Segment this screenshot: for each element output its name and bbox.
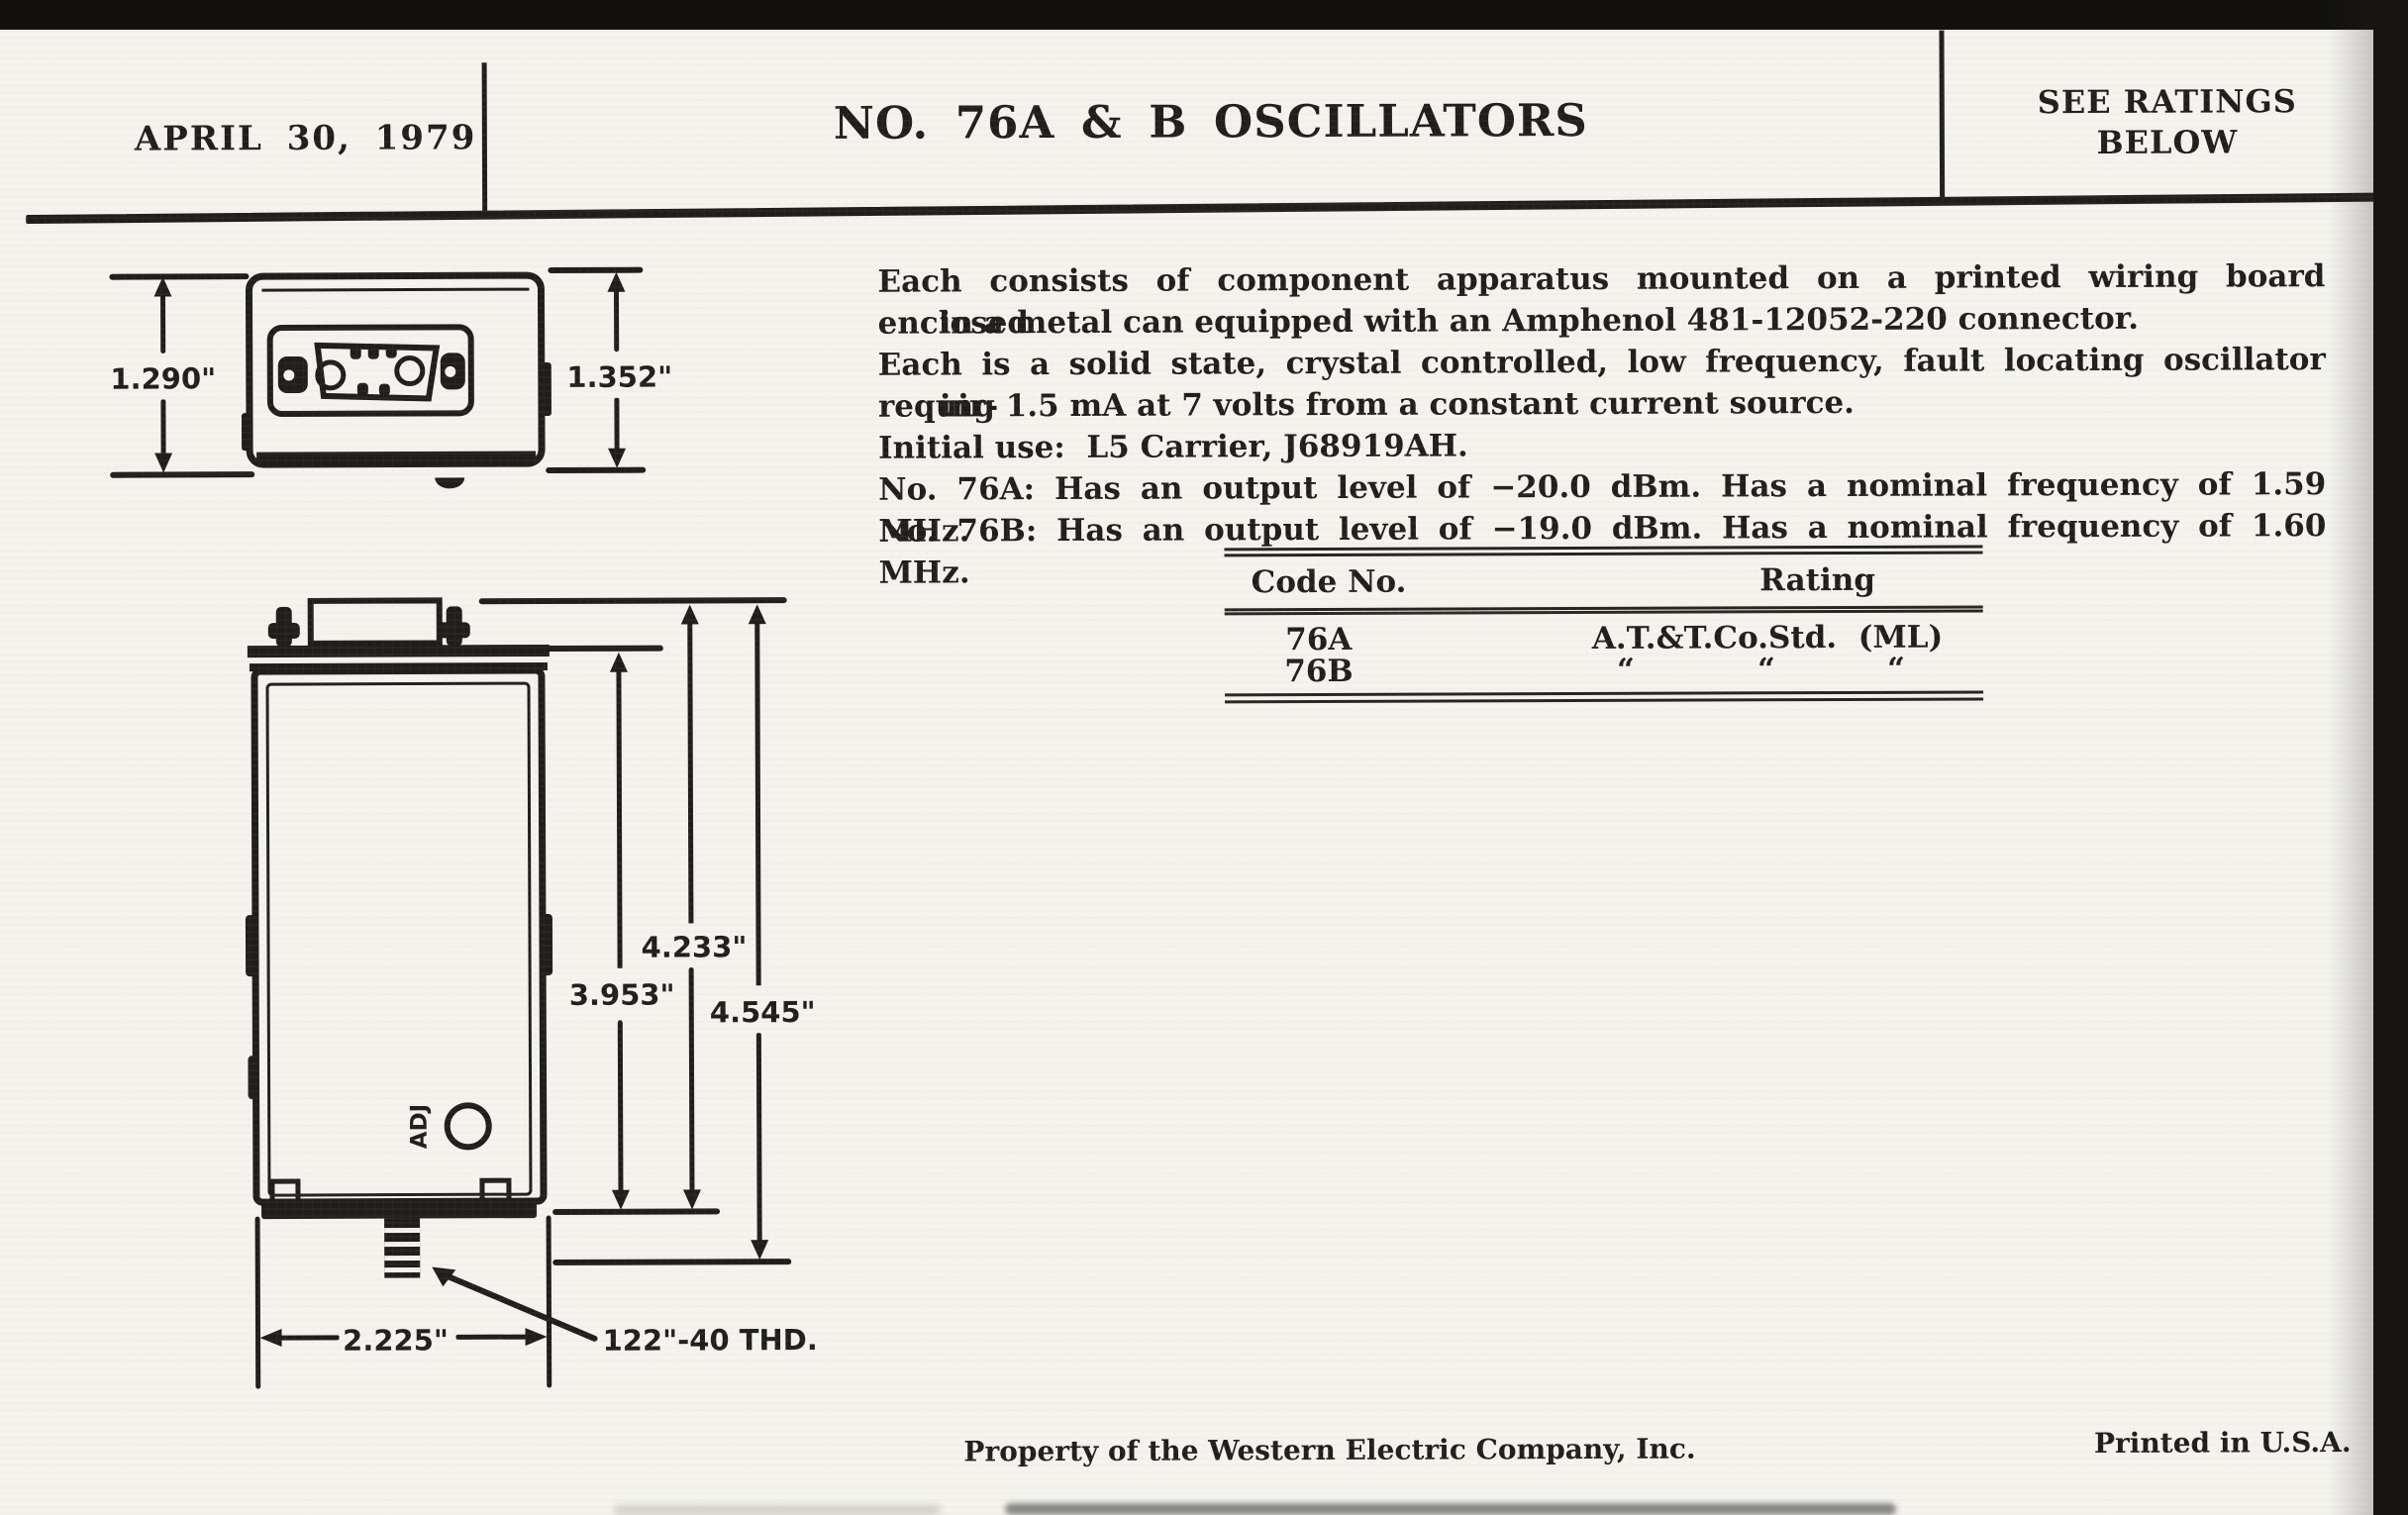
side-tab (542, 362, 552, 416)
description-line: in a metal can equipped with an Amphenol… (878, 297, 2326, 345)
column-header-rating: Rating (1759, 562, 1875, 598)
oscillator-front-view-diagram: ADJ (139, 571, 864, 1400)
top-plate-label (311, 600, 440, 643)
scanned-spec-sheet: APRIL 30, 1979 NO. 76A & B OSCILLATORS S… (0, 0, 2408, 1515)
threaded-stud (384, 1219, 420, 1278)
printed-in-usa: Printed in U.S.A. (2094, 1426, 2352, 1460)
dim-label-4545: 4.545" (710, 995, 816, 1029)
bottom-bracket (482, 1180, 509, 1200)
table-cell-code-76b: 76B (1284, 654, 1353, 689)
scan-edge-right (2373, 0, 2408, 1515)
description-block: Each consists of component apparatus mou… (877, 255, 2326, 553)
ditto-mark: “ (1757, 652, 1775, 687)
description-line: ing 1.5 mA at 7 volts from a constant cu… (878, 380, 2326, 428)
ratings-table: Code No. Rating 76A A.T.&T.Co.Std. (ML) … (1224, 545, 1983, 703)
adj-hole (448, 1105, 489, 1147)
scan-edge-top (0, 0, 2408, 30)
spec-line-76a: No. 76A: Has an output level of −20.0 dB… (878, 463, 2326, 511)
side-tab (542, 914, 552, 975)
scan-edge-shade (2329, 0, 2373, 1515)
dim-label-3953: 3.953" (569, 978, 675, 1012)
header-divider-right (1939, 31, 1945, 205)
issue-date: APRIL 30, 1979 (135, 118, 477, 158)
page-title: NO. 76A & B OSCILLATORS (691, 93, 1731, 150)
initial-use-line: Initial use: L5 Carrier, J68919AH. (878, 422, 2326, 469)
table-header-rule (1225, 605, 1983, 615)
dim-label-4233: 4.233" (642, 930, 748, 963)
thread-spec-label: 122"-40 THD. (602, 1323, 817, 1358)
oscillator-top-view-diagram: 1.290" 1.352" (87, 252, 712, 501)
bottom-stud-bump (435, 477, 464, 488)
side-tab (246, 915, 256, 976)
bottom-bracket (272, 1181, 298, 1201)
description-line: Each consists of component apparatus mou… (877, 255, 2325, 303)
scan-smudge (1005, 1503, 1896, 1515)
table-cell-code-76a: 76A (1285, 622, 1352, 657)
side-tab (248, 1056, 257, 1099)
scan-smudge (614, 1506, 941, 1514)
property-notice: Property of the Western Electric Company… (894, 1432, 1765, 1467)
header-divider-left (482, 62, 488, 213)
dim-label-width: 2.225" (343, 1323, 449, 1357)
ratings-note: SEE RATINGS BELOW (1978, 81, 2357, 163)
spec-line-76b: No. 76B: Has an output level of −19.0 dB… (878, 505, 2326, 553)
header-rule (26, 193, 2376, 224)
ditto-mark: “ (1617, 653, 1635, 688)
dim-label-height-overall: 1.352" (566, 360, 672, 394)
connector-socket (397, 357, 423, 383)
ratings-note-line1: SEE RATINGS (1978, 81, 2357, 123)
dim-label-height-body: 1.290" (110, 361, 216, 395)
ditto-mark: “ (1887, 652, 1905, 687)
description-line: Each is a solid state, crystal controlle… (878, 339, 2326, 386)
ratings-note-line2: BELOW (1978, 122, 2357, 163)
column-header-code: Code No. (1252, 564, 1407, 601)
can-body (254, 670, 544, 1202)
side-tab (242, 413, 251, 451)
adj-label: ADJ (407, 1104, 433, 1150)
